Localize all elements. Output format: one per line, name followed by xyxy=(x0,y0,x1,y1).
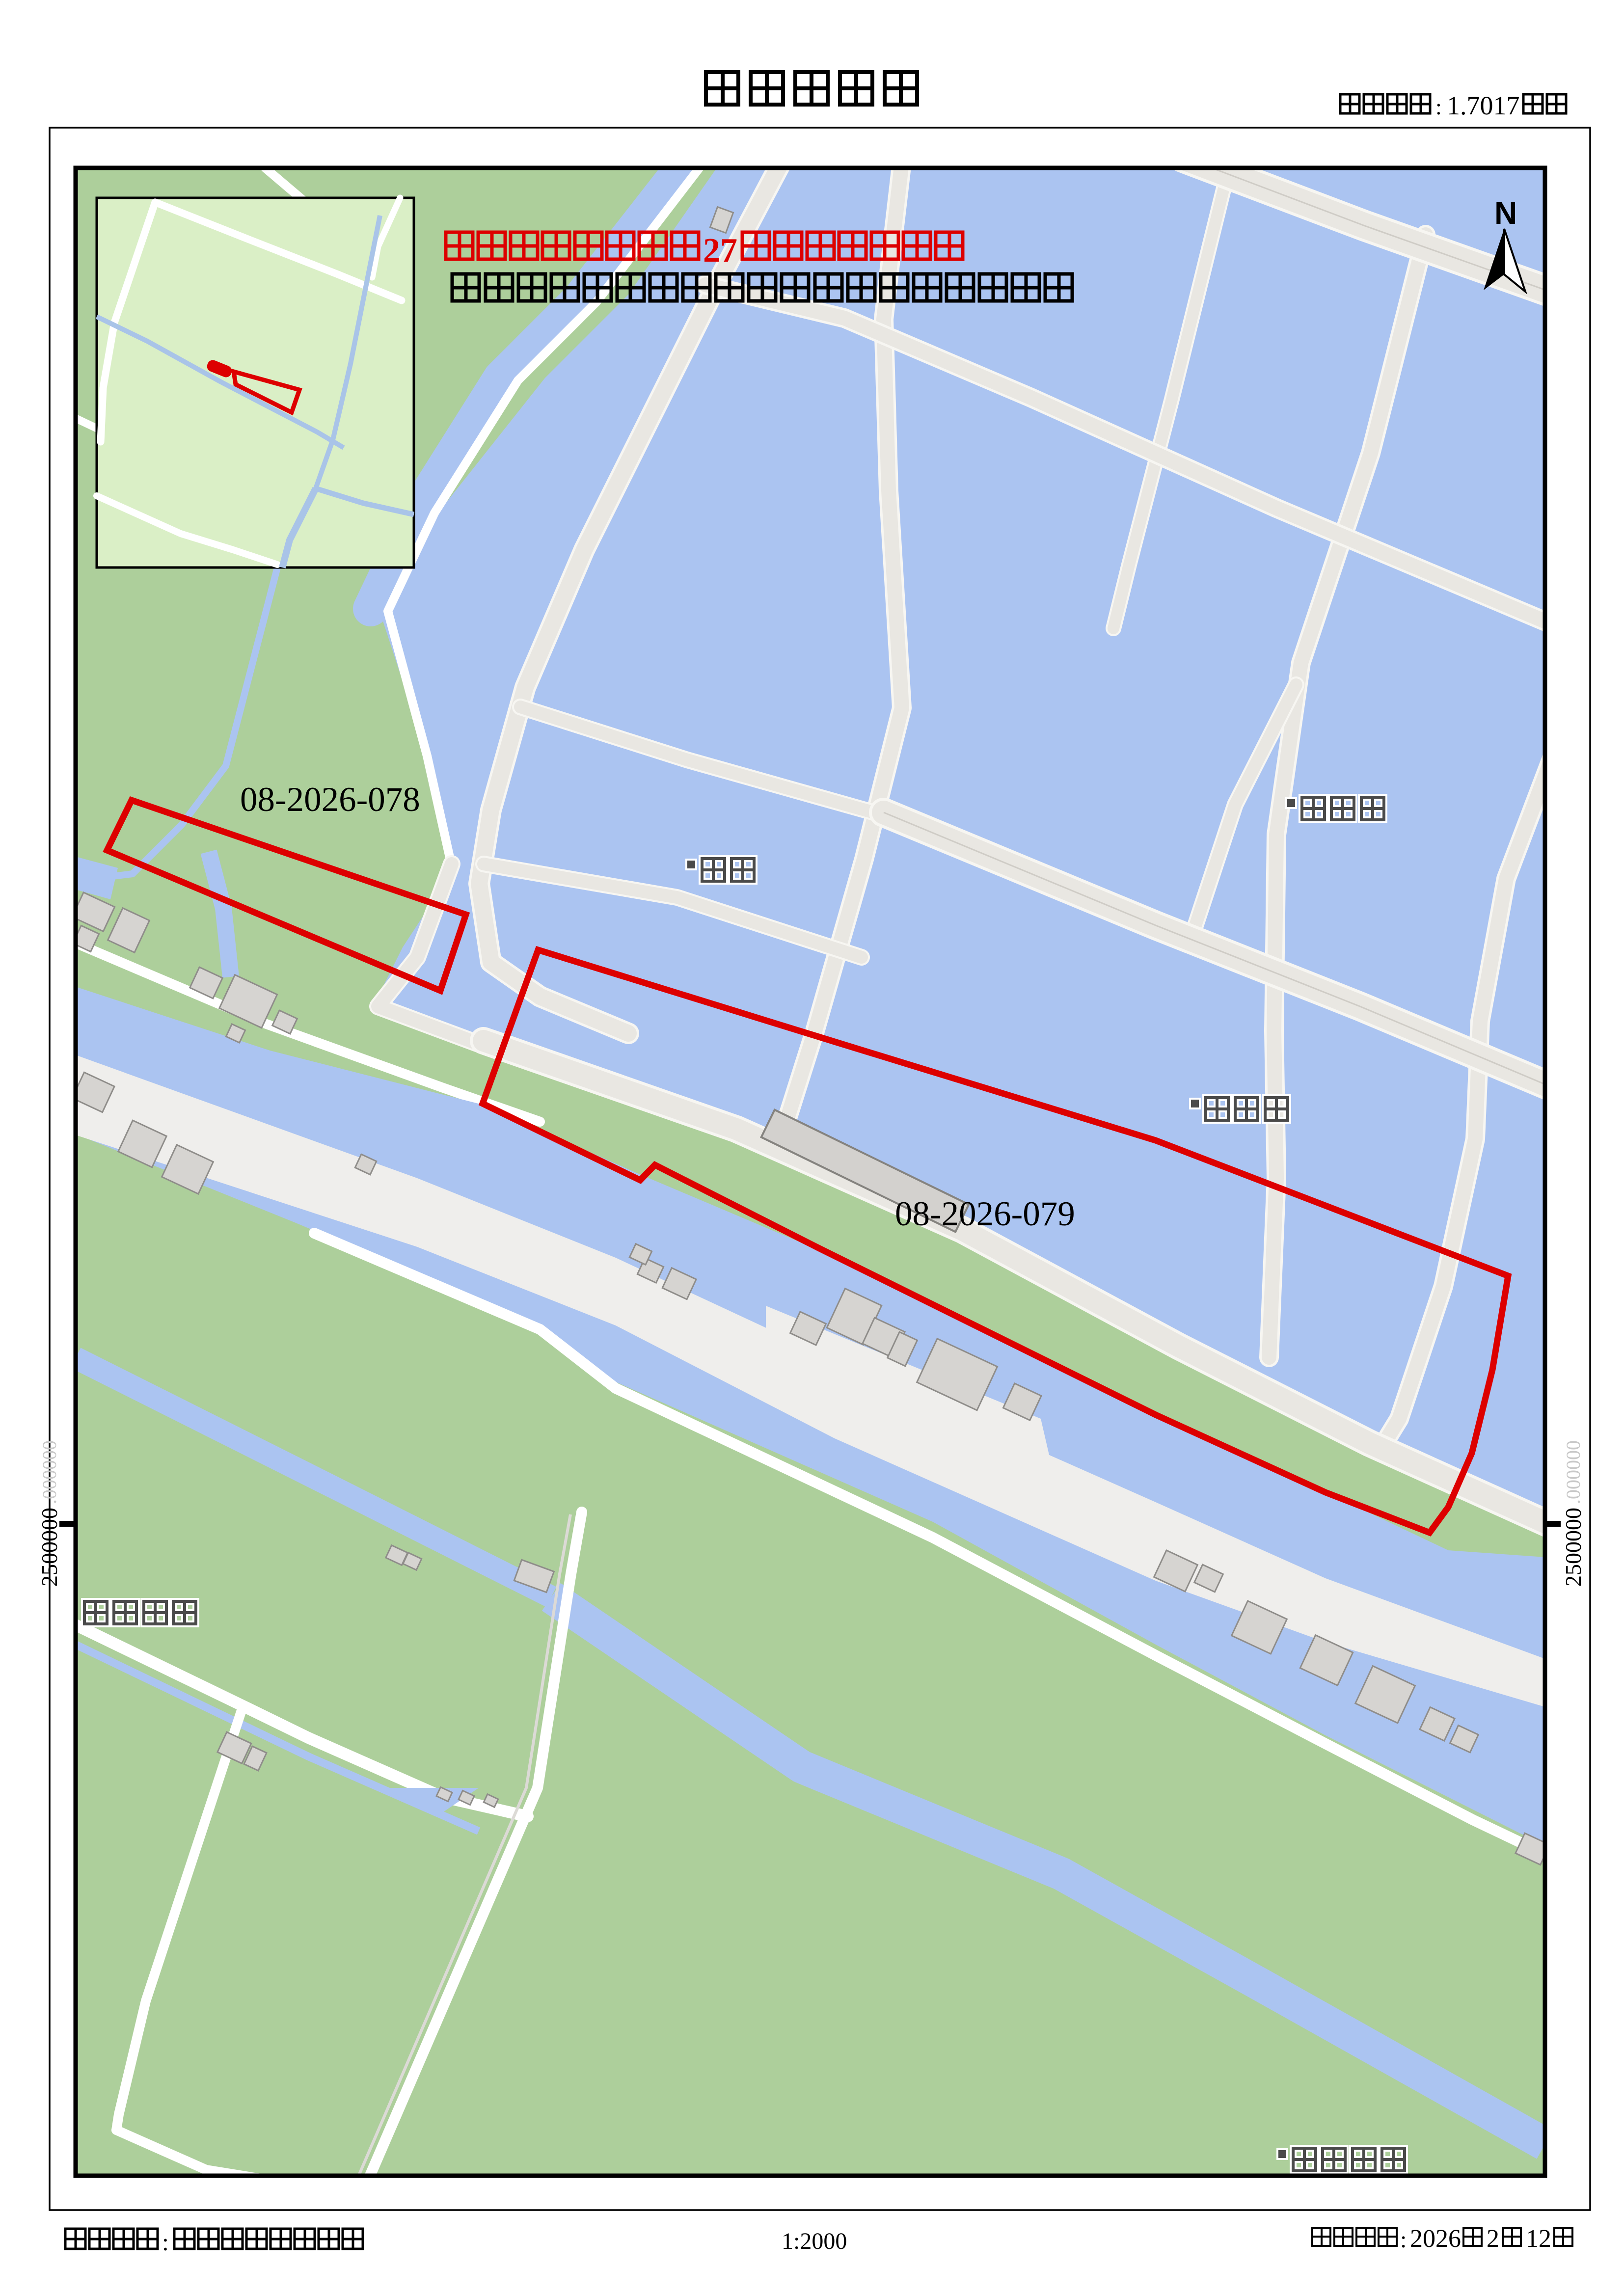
svg-text:2026: 2026 xyxy=(1410,2225,1461,2253)
svg-text:08-2026-078: 08-2026-078 xyxy=(240,781,420,819)
svg-text:12: 12 xyxy=(1526,2225,1551,2253)
svg-text:N: N xyxy=(1494,195,1517,231)
svg-text:.000000: .000000 xyxy=(38,1440,60,1504)
svg-text:27: 27 xyxy=(703,232,737,270)
svg-text:1:2000: 1:2000 xyxy=(782,2228,847,2254)
svg-text:2500000: 2500000 xyxy=(37,1508,62,1587)
svg-text:.000000: .000000 xyxy=(1562,1440,1584,1504)
svg-text:1.7017: 1.7017 xyxy=(1447,91,1520,120)
svg-text:2: 2 xyxy=(1487,2225,1499,2253)
svg-text:2500000: 2500000 xyxy=(1561,1508,1586,1587)
svg-text:08-2026-079: 08-2026-079 xyxy=(895,1195,1075,1233)
svg-text::: : xyxy=(162,2228,169,2256)
svg-text::: : xyxy=(1435,94,1442,119)
svg-text::: : xyxy=(1400,2227,1407,2253)
